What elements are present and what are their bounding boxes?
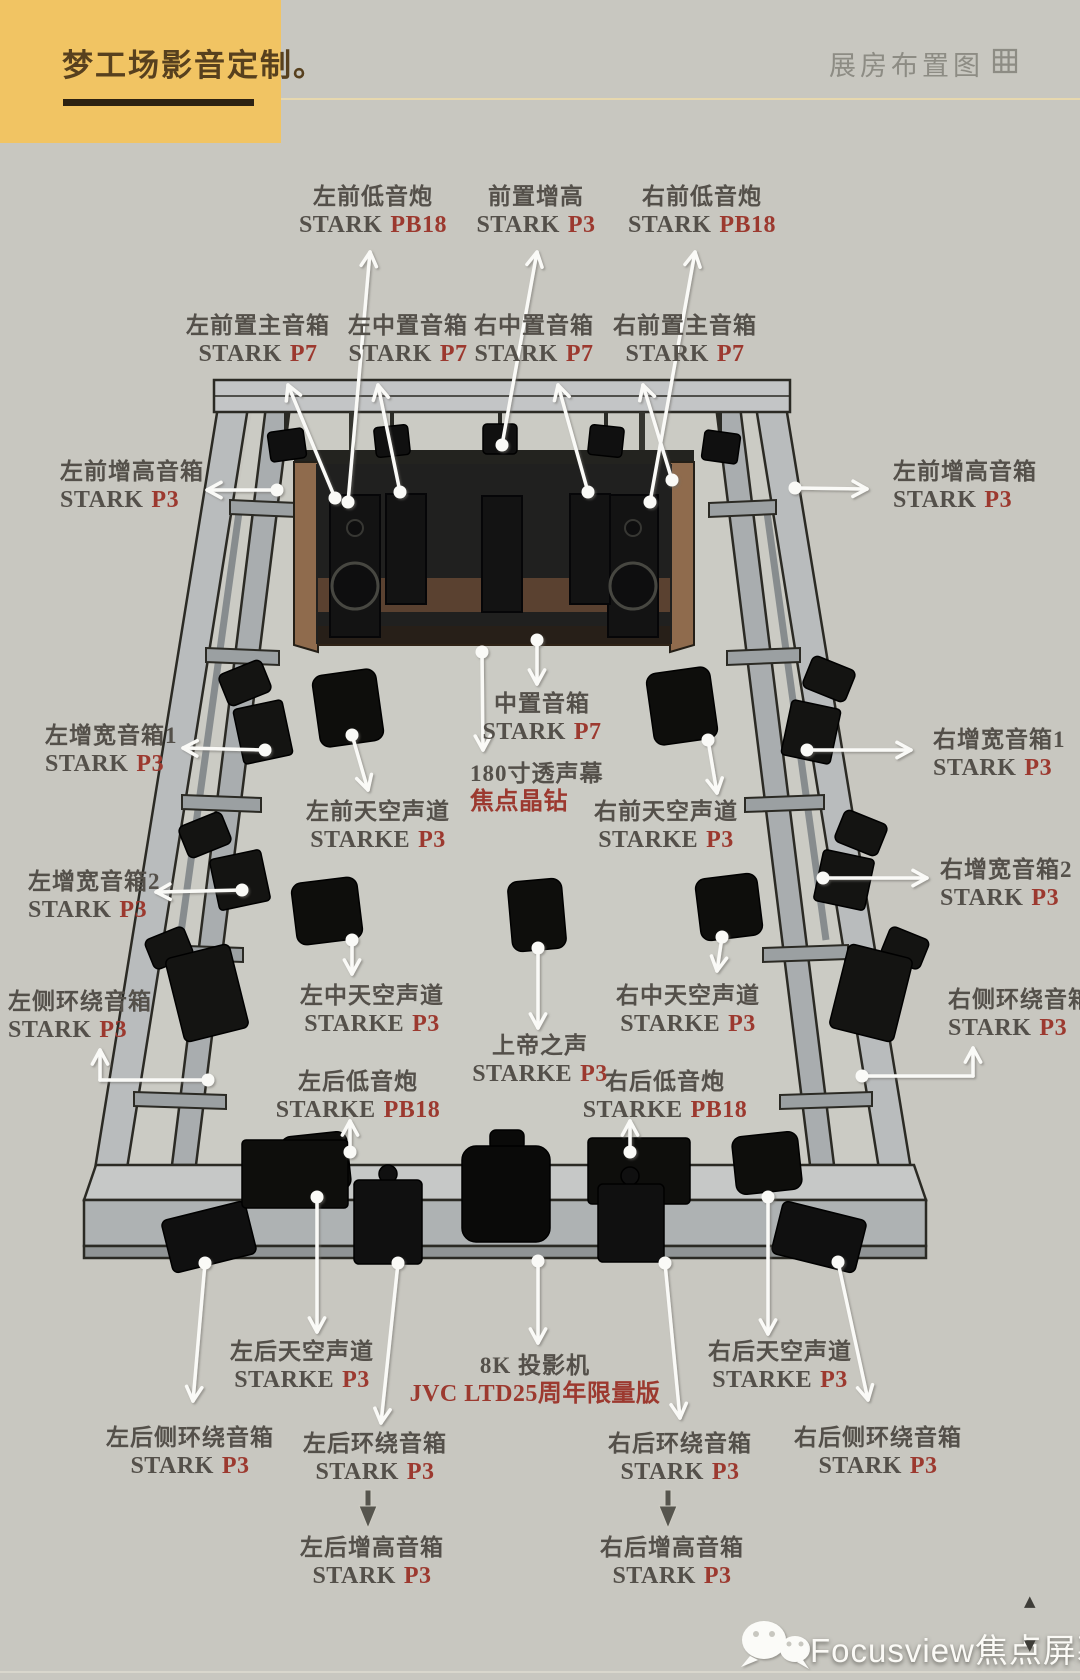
label-sub-rear-left: 左后低音炮STARKEPB18 xyxy=(276,1068,441,1125)
label-height-rear-right: 右后增高音箱STARKP3 xyxy=(600,1534,744,1591)
label-projector-model: JVC LTD25周年限量版 xyxy=(410,1380,661,1409)
label-height-front-right-title: 左前增高音箱 xyxy=(893,458,1037,486)
label-sky-mid-right-title: 右中天空声道 xyxy=(616,982,760,1010)
label-voice-of-god-title: 上帝之声 xyxy=(472,1032,608,1060)
label-surround-rear-right: 右后环绕音箱STARKP3 xyxy=(608,1430,752,1487)
label-height-front-left-title: 左前增高音箱 xyxy=(60,458,204,486)
grid-icon xyxy=(992,48,1018,79)
label-front-height-center-model: STARKP3 xyxy=(476,211,595,240)
label-surround-rear-right-title: 右后环绕音箱 xyxy=(608,1430,752,1458)
label-center-left-title: 左中置音箱 xyxy=(348,312,468,340)
label-sky-front-left-model: STARKEP3 xyxy=(306,826,450,855)
label-wide-left-1: 左增宽音箱1STARKP3 xyxy=(45,722,178,779)
header-divider xyxy=(281,98,1080,100)
label-front-main-right-title: 右前置主音箱 xyxy=(613,312,757,340)
label-height-rear-right-model: STARKP3 xyxy=(600,1562,744,1591)
label-front-main-left-model: STARKP7 xyxy=(186,340,330,369)
watermark-text: Focusview焦点屏幕 xyxy=(810,1624,1080,1672)
label-projector: 8K 投影机JVC LTD25周年限量版 xyxy=(410,1352,661,1409)
label-sky-mid-left-model: STARKEP3 xyxy=(300,1010,444,1039)
label-wide-left-2-title: 左增宽音箱2 xyxy=(28,868,161,896)
rear-sub-left-speaker xyxy=(242,1140,348,1208)
label-center-channel: 中置音箱STARKP7 xyxy=(482,690,601,747)
label-center-right-model: STARKP7 xyxy=(474,340,594,369)
scroll-up-icon: ▲ xyxy=(1024,1592,1036,1610)
label-wide-left-1-model: STARKP3 xyxy=(45,750,178,779)
label-sky-mid-left: 左中天空声道STARKEP3 xyxy=(300,982,444,1039)
label-surround-rear-left-model: STARKP3 xyxy=(303,1458,447,1487)
label-center-left: 左中置音箱STARKP7 xyxy=(348,312,468,369)
label-side-surround-right: 右侧环绕音箱STARKP3 xyxy=(948,986,1080,1043)
label-front-height-center: 前置增高STARKP3 xyxy=(476,183,595,240)
rear-surround-right-speaker xyxy=(598,1184,664,1262)
label-wide-right-2-title: 右增宽音箱2 xyxy=(940,856,1073,884)
label-front-sub-left-title: 左前低音炮 xyxy=(299,183,447,211)
label-sky-front-left-title: 左前天空声道 xyxy=(306,798,450,826)
scroll-down-icon: ▼ xyxy=(1024,1636,1036,1654)
label-surround-rear-side-right-title: 右后侧环绕音箱 xyxy=(794,1424,962,1452)
label-surround-rear-left-title: 左后环绕音箱 xyxy=(303,1430,447,1458)
label-sky-rear-left: 左后天空声道STARKEP3 xyxy=(230,1338,374,1395)
label-front-main-right: 右前置主音箱STARKP7 xyxy=(613,312,757,369)
label-sky-mid-right: 右中天空声道STARKEP3 xyxy=(616,982,760,1039)
label-side-surround-left-title: 左侧环绕音箱 xyxy=(8,988,152,1016)
label-wide-left-2-model: STARKP3 xyxy=(28,896,161,925)
label-center-channel-model: STARKP7 xyxy=(482,718,601,747)
label-front-main-right-model: STARKP7 xyxy=(613,340,757,369)
label-surround-rear-right-model: STARKP3 xyxy=(608,1458,752,1487)
label-sub-rear-left-title: 左后低音炮 xyxy=(276,1068,441,1096)
label-wide-right-1-title: 右增宽音箱1 xyxy=(933,726,1066,754)
label-side-surround-left: 左侧环绕音箱STARKP3 xyxy=(8,988,152,1045)
corner-title-group: 展房布置图 xyxy=(829,44,1018,83)
label-front-sub-left-model: STARKPB18 xyxy=(299,211,447,240)
label-wide-right-1-model: STARKP3 xyxy=(933,754,1066,783)
label-wide-right-2-model: STARKP3 xyxy=(940,884,1073,913)
label-height-rear-right-title: 右后增高音箱 xyxy=(600,1534,744,1562)
label-surround-rear-side-left: 左后侧环绕音箱STARKP3 xyxy=(106,1424,274,1481)
corner-title: 展房布置图 xyxy=(829,44,984,83)
label-projector-title: 8K 投影机 xyxy=(410,1352,661,1380)
wechat-icon xyxy=(741,1621,810,1669)
label-surround-rear-side-right: 右后侧环绕音箱STARKP3 xyxy=(794,1424,962,1481)
label-surround-rear-side-right-model: STARKP3 xyxy=(794,1452,962,1481)
label-side-surround-right-title: 右侧环绕音箱 xyxy=(948,986,1080,1014)
label-height-front-left: 左前增高音箱STARKP3 xyxy=(60,458,204,515)
label-sky-rear-right: 右后天空声道STARKEP3 xyxy=(708,1338,852,1395)
label-front-sub-left: 左前低音炮STARKPB18 xyxy=(299,183,447,240)
label-sky-front-right: 右前天空声道STARKEP3 xyxy=(594,798,738,855)
brand-logo-text: 梦工场影音定制。 xyxy=(62,40,326,85)
label-front-sub-right-title: 右前低音炮 xyxy=(628,183,776,211)
label-sub-rear-left-model: STARKEPB18 xyxy=(276,1096,441,1125)
label-center-left-model: STARKP7 xyxy=(348,340,468,369)
label-sub-rear-right-model: STARKEPB18 xyxy=(583,1096,748,1125)
label-wide-right-2: 右增宽音箱2STARKP3 xyxy=(940,856,1073,913)
label-height-rear-left-model: STARKP3 xyxy=(300,1562,444,1591)
label-front-main-left-title: 左前置主音箱 xyxy=(186,312,330,340)
label-sky-front-right-model: STARKEP3 xyxy=(594,826,738,855)
brand-box: 梦工场影音定制。 xyxy=(0,0,281,143)
label-sub-rear-right: 右后低音炮STARKEPB18 xyxy=(583,1068,748,1125)
label-sky-rear-left-model: STARKEP3 xyxy=(230,1366,374,1395)
label-wide-right-1: 右增宽音箱1STARKP3 xyxy=(933,726,1066,783)
label-center-right: 右中置音箱STARKP7 xyxy=(474,312,594,369)
label-screen-model: 焦点晶钻 xyxy=(470,788,604,817)
label-sky-rear-right-title: 右后天空声道 xyxy=(708,1338,852,1366)
label-side-surround-right-model: STARKP3 xyxy=(948,1014,1080,1043)
rear-surround-left-speaker xyxy=(354,1180,422,1264)
label-screen: 180寸透声幕焦点晶钻 xyxy=(470,760,604,817)
label-side-surround-left-model: STARKP3 xyxy=(8,1016,152,1045)
label-front-sub-right-model: STARKPB18 xyxy=(628,211,776,240)
label-height-rear-left-title: 左后增高音箱 xyxy=(300,1534,444,1562)
label-height-front-left-model: STARKP3 xyxy=(60,486,204,515)
label-front-main-left: 左前置主音箱STARKP7 xyxy=(186,312,330,369)
label-surround-rear-left: 左后环绕音箱STARKP3 xyxy=(303,1430,447,1487)
label-center-right-title: 右中置音箱 xyxy=(474,312,594,340)
label-front-height-center-title: 前置增高 xyxy=(476,183,595,211)
label-center-channel-title: 中置音箱 xyxy=(482,690,601,718)
label-front-sub-right: 右前低音炮STARKPB18 xyxy=(628,183,776,240)
label-height-front-right-model: STARKP3 xyxy=(893,486,1037,515)
label-sky-front-right-title: 右前天空声道 xyxy=(594,798,738,826)
brand-underline xyxy=(63,99,254,106)
label-sky-mid-left-title: 左中天空声道 xyxy=(300,982,444,1010)
label-sky-front-left: 左前天空声道STARKEP3 xyxy=(306,798,450,855)
label-wide-left-1-title: 左增宽音箱1 xyxy=(45,722,178,750)
label-height-front-right: 左前增高音箱STARKP3 xyxy=(893,458,1037,515)
label-surround-rear-side-left-title: 左后侧环绕音箱 xyxy=(106,1424,274,1452)
label-wide-left-2: 左增宽音箱2STARKP3 xyxy=(28,868,161,925)
projector-body xyxy=(462,1146,550,1242)
label-sky-mid-right-model: STARKEP3 xyxy=(616,1010,760,1039)
label-sub-rear-right-title: 右后低音炮 xyxy=(583,1068,748,1096)
label-sky-rear-left-title: 左后天空声道 xyxy=(230,1338,374,1366)
label-surround-rear-side-left-model: STARKP3 xyxy=(106,1452,274,1481)
label-screen-title: 180寸透声幕 xyxy=(470,760,604,788)
label-height-rear-left: 左后增高音箱STARKP3 xyxy=(300,1534,444,1591)
label-sky-rear-right-model: STARKEP3 xyxy=(708,1366,852,1395)
down-link-arrows xyxy=(359,1490,677,1528)
